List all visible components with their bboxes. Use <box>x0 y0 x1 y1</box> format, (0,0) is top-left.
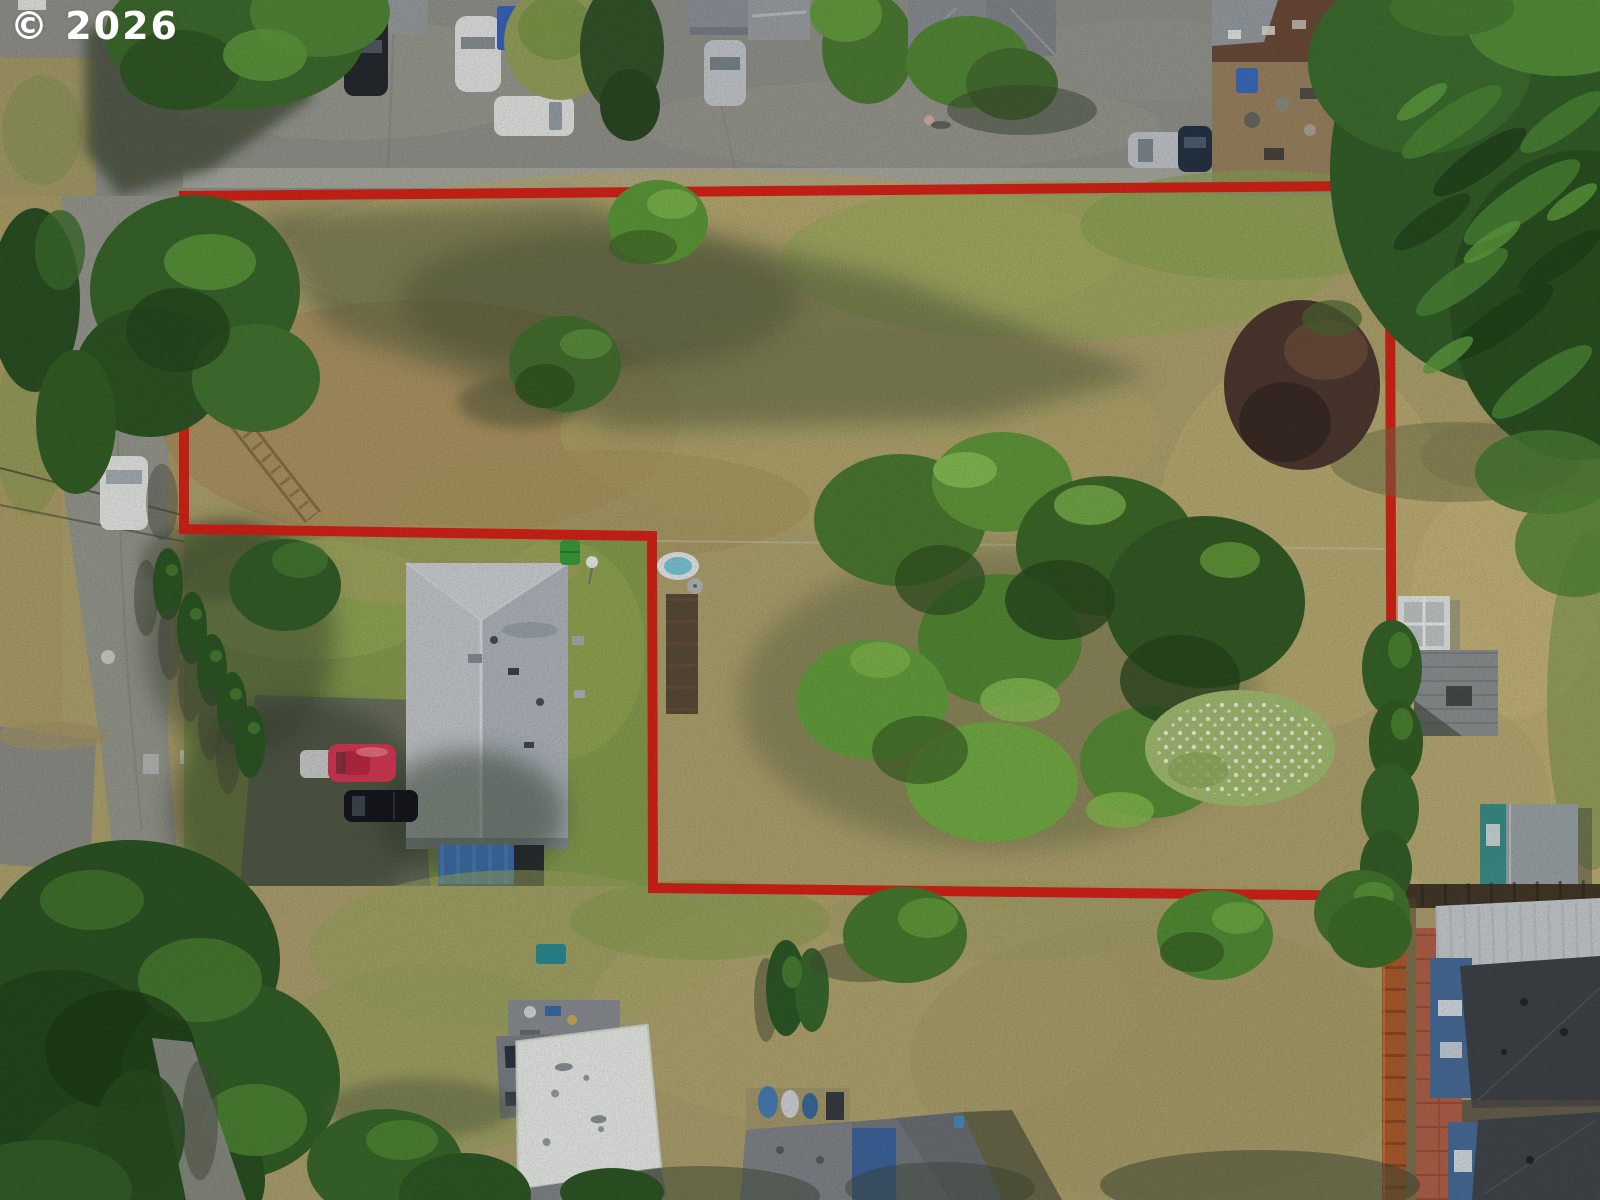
aerial-photo: © 2026 <box>0 0 1600 1200</box>
copyright-watermark: © 2026 <box>10 4 179 48</box>
aerial-photo-canvas <box>0 0 1600 1200</box>
texture-grain <box>0 0 1600 1200</box>
